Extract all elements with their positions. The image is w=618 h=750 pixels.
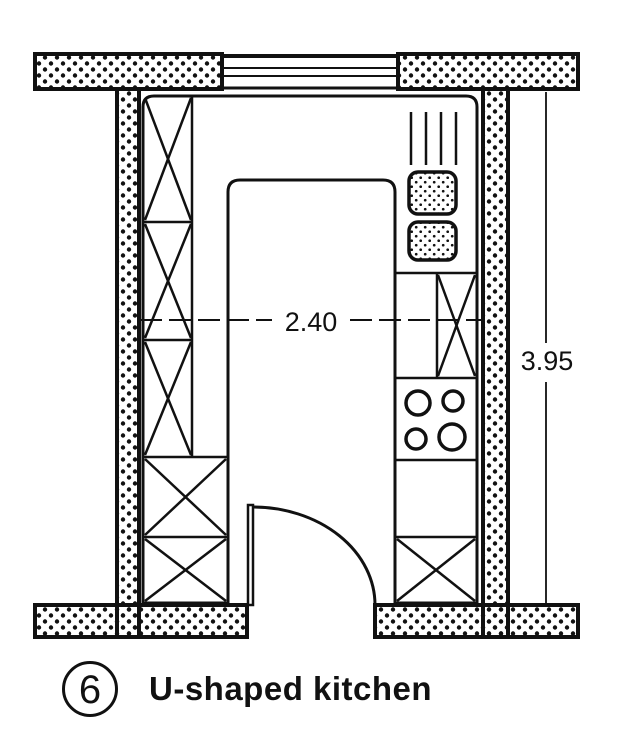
dimension-width-label: 2.40: [285, 307, 338, 337]
wall-right: [483, 89, 508, 637]
burner: [406, 429, 426, 449]
door-leaf: [248, 505, 253, 605]
door-swing-arc: [253, 507, 375, 605]
door-symbol: [248, 505, 375, 605]
figure-number: 6: [79, 668, 101, 712]
wall-left: [117, 89, 139, 637]
wall-top-left: [35, 54, 222, 89]
window-symbol: [222, 50, 398, 91]
sink-basin-2: [409, 222, 456, 260]
dimension-height-label: 3.95: [521, 346, 574, 376]
wall-top-right: [398, 54, 578, 89]
sink-basin-1: [409, 172, 456, 214]
wall-bottom-left: [35, 605, 247, 637]
burner: [443, 391, 463, 411]
burner: [439, 424, 465, 450]
figure-caption: U-shaped kitchen: [149, 670, 432, 707]
wall-bottom-right: [375, 605, 578, 637]
dimension-height: 3.95: [521, 92, 574, 605]
kitchen-plan-svg: 2.40 3.95 6 U-shaped kitchen: [0, 0, 618, 750]
figure-caption-group: 6 U-shaped kitchen: [64, 663, 433, 716]
figure-page: 2.40 3.95 6 U-shaped kitchen: [0, 0, 618, 750]
burner: [406, 391, 430, 415]
